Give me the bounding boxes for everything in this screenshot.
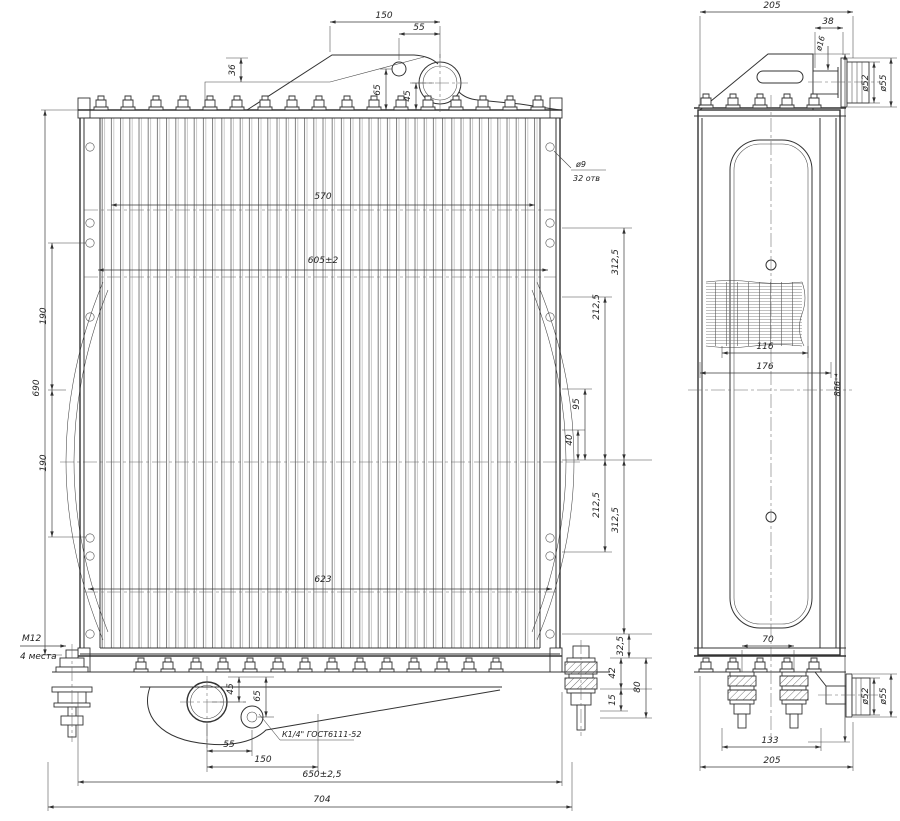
mounting-hole	[546, 630, 554, 638]
dim-65-bottom: 65	[253, 690, 263, 702]
mounting-hole	[86, 239, 94, 247]
bolt-icon	[726, 94, 740, 108]
bolt-icon	[258, 96, 272, 110]
bolt-icon	[380, 658, 394, 672]
dim-605: 605±2	[308, 256, 339, 266]
bolt-icon	[462, 658, 476, 672]
rubber-pad	[728, 690, 756, 700]
bolt-icon	[161, 658, 175, 672]
dim-690: 690	[32, 379, 42, 396]
bolt-icon	[94, 96, 108, 110]
rubber-pad	[728, 676, 756, 686]
bolt-icon	[216, 658, 230, 672]
sv-bottom-bracket	[728, 672, 880, 728]
bolt-icon	[780, 658, 794, 672]
rubber-pad	[780, 676, 808, 686]
mounting-hole	[86, 630, 94, 638]
radiator-technical-drawing: 150 55 36 65 45 ø9 32 отв 570 605±2 623 …	[0, 0, 900, 821]
bolt-icon	[134, 658, 148, 672]
mounting-hole	[546, 534, 554, 542]
dia-16: ø16	[814, 35, 827, 53]
sv-bolt-row-bottom	[699, 658, 821, 672]
bolt-icon	[271, 658, 285, 672]
mounting-hole	[546, 552, 554, 560]
dim-42: 42	[608, 667, 618, 679]
bolt-icon	[489, 658, 503, 672]
dim-38: 38	[822, 17, 834, 27]
dim-190-lower: 190	[39, 454, 49, 471]
bolt-icon	[531, 96, 545, 110]
bolt-icon	[176, 96, 190, 110]
dim-36: 36	[228, 64, 238, 76]
bolt-icon	[243, 658, 257, 672]
bolt-icon	[699, 94, 713, 108]
side-view: 205 38 ø16 ø52 ø55 866⁺⁴ 116 176	[688, 1, 897, 771]
dia-55-top: ø55	[879, 74, 889, 92]
drain-thread-note: К1/4" ГОСТ6111-52	[282, 730, 361, 739]
bolt-icon	[435, 658, 449, 672]
dim-190-upper: 190	[39, 307, 49, 324]
mounting-hole	[546, 239, 554, 247]
dim-40: 40	[565, 434, 575, 446]
dim-866: 866⁺⁴	[833, 373, 842, 396]
mounting-hole	[86, 552, 94, 560]
pipe-flange	[841, 58, 847, 107]
mounting-hole	[86, 219, 94, 227]
mounting-hole	[546, 143, 554, 151]
bolt-icon	[476, 96, 490, 110]
dim-570: 570	[314, 192, 331, 202]
bolt-icon	[340, 96, 354, 110]
dim-80: 80	[633, 681, 643, 693]
dim-95: 95	[572, 398, 582, 410]
bolt-icon	[407, 658, 421, 672]
bolt-icon	[285, 96, 299, 110]
bolt-icon	[149, 96, 163, 110]
bolt-icon	[503, 96, 517, 110]
mounting-hole	[86, 143, 94, 151]
dim-32-5: 32,5	[616, 636, 626, 656]
bolt-icon	[325, 658, 339, 672]
bolt-icon	[807, 658, 821, 672]
dim-116: 116	[756, 342, 773, 352]
bolt-icon	[421, 96, 435, 110]
side-member-holes-left	[86, 143, 94, 638]
top-tank	[78, 110, 562, 118]
thread-note-places: 4 места	[20, 652, 57, 662]
dim-312-5-upper: 312,5	[611, 249, 621, 275]
bolt-icon	[753, 658, 767, 672]
dim-70: 70	[762, 635, 774, 645]
bracket-hole	[392, 62, 406, 76]
bolt-icon	[726, 658, 740, 672]
hole-quantity-note: 32 отв	[573, 174, 600, 183]
dim-212-5-lower: 212,5	[592, 492, 602, 518]
dim-55-top: 55	[413, 23, 425, 33]
dim-15: 15	[608, 694, 618, 706]
dim-45-top: 45	[403, 90, 413, 102]
bolt-icon	[189, 658, 203, 672]
dim-176: 176	[756, 362, 773, 372]
dim-650: 650±2,5	[302, 770, 341, 780]
bolt-icon	[230, 96, 244, 110]
mounting-hole	[546, 219, 554, 227]
dim-312-5-lower: 312,5	[611, 507, 621, 533]
dim-55-bottom: 55	[223, 740, 235, 750]
dim-150-top: 150	[375, 11, 392, 21]
pipe-flange	[846, 674, 852, 717]
bolt-icon	[699, 658, 713, 672]
mounting-hole	[86, 534, 94, 542]
bolt-icon	[367, 96, 381, 110]
dim-205-bottom: 205	[763, 756, 780, 766]
bolt-row-bottom	[134, 658, 503, 672]
bolt-icon	[312, 96, 326, 110]
hole-diameter-note: ø9	[575, 160, 586, 169]
dim-623: 623	[314, 575, 331, 585]
dim-205-top: 205	[763, 1, 780, 11]
mounting-stud-right	[565, 640, 597, 736]
dim-133: 133	[761, 736, 778, 746]
bolt-icon	[298, 658, 312, 672]
bolt-icon	[753, 94, 767, 108]
dia-52-bottom: ø52	[861, 687, 871, 705]
front-view: 150 55 36 65 45 ø9 32 отв 570 605±2 623 …	[20, 11, 652, 811]
bolt-icon	[121, 96, 135, 110]
dim-45-bottom: 45	[226, 683, 236, 695]
core-section-fins	[706, 282, 802, 346]
dim-704: 704	[313, 795, 330, 805]
drawing-sheet: 150 55 36 65 45 ø9 32 отв 570 605±2 623 …	[0, 0, 900, 821]
side-member-holes-right	[546, 143, 554, 638]
rubber-pad	[780, 690, 808, 700]
bolt-row-top	[94, 96, 545, 110]
dim-212-5-upper: 212,5	[592, 294, 602, 320]
thread-note-m12: М12	[22, 634, 41, 644]
bracket-slot	[757, 71, 803, 83]
dim-65-top: 65	[373, 84, 383, 96]
dia-55-bottom: ø55	[879, 687, 889, 705]
bolt-icon	[780, 94, 794, 108]
bolt-icon	[353, 658, 367, 672]
dia-52-top: ø52	[861, 74, 871, 92]
bolt-icon	[449, 96, 463, 110]
dim-150-bottom: 150	[254, 755, 271, 765]
bolt-icon	[807, 94, 821, 108]
inlet-pipe-stub	[813, 71, 838, 94]
